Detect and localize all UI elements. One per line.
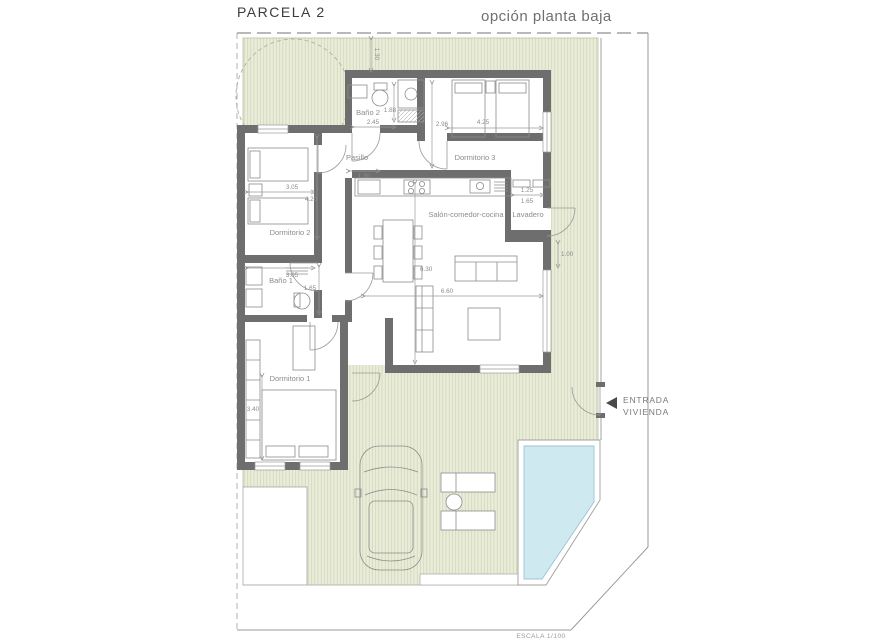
- dim-label: 4.25: [477, 119, 490, 126]
- dim-label: 4.20: [305, 196, 318, 203]
- pool: [518, 440, 600, 585]
- wall-segment: [385, 318, 393, 365]
- wall-segment: [345, 70, 551, 78]
- dim-label: 6.30: [420, 266, 433, 273]
- wall-segment: [380, 125, 417, 133]
- room-label-pasillo: Pasillo: [346, 153, 368, 162]
- page-title: PARCELA 2: [237, 4, 326, 20]
- wall-segment: [543, 352, 551, 373]
- wall-segment: [237, 462, 255, 470]
- wall-segment: [345, 178, 352, 273]
- floor-plan-page: PARCELA 2 opción planta baja: [0, 0, 878, 640]
- floor-plan-drawing: PARCELA 2 opción planta baja: [0, 0, 878, 640]
- dim-label: 6.60: [441, 288, 454, 295]
- entrance-annotation: ENTRADA VIVIENDA: [606, 395, 669, 417]
- entrance-arrow-icon: [606, 397, 617, 409]
- wall-segment: [345, 300, 352, 322]
- wall-segment: [245, 255, 314, 263]
- room-label-salon: Salón-comedor-cocina: [428, 210, 504, 219]
- wall-segment: [340, 365, 348, 470]
- dim-label: 1.25: [521, 187, 534, 194]
- room-label-lavadero: Lavadero: [512, 210, 543, 219]
- room-label-bano2: Baño 2: [356, 108, 380, 117]
- entrance-label-line2: VIVIENDA: [623, 407, 669, 417]
- dim-label: 3.40: [247, 406, 260, 413]
- wall-segment: [417, 133, 425, 141]
- wall-segment: [505, 230, 551, 242]
- lounger: [441, 511, 495, 530]
- lounger: [441, 473, 495, 492]
- wall-segment: [505, 178, 511, 230]
- room-label-bano1: Baño 1: [269, 276, 293, 285]
- entrance-label-line1: ENTRADA: [623, 395, 669, 405]
- dim-label: 3.05: [286, 184, 299, 191]
- dim-label: 2.45: [367, 119, 380, 126]
- dim-label: 1.30: [358, 173, 371, 180]
- dim-label: 1.65: [521, 198, 534, 205]
- gate-post: [596, 413, 605, 418]
- plot-boundary-chamfer: [571, 547, 648, 630]
- wall-segment: [288, 125, 345, 133]
- wall-segment: [345, 78, 352, 133]
- wall-segment: [314, 172, 322, 263]
- dim-label: 1.30: [373, 48, 380, 61]
- dim-label: 2.96: [436, 121, 449, 128]
- wall-segment: [543, 242, 551, 270]
- shower-step-hatch: [398, 110, 424, 122]
- wall-segment: [385, 365, 480, 373]
- page-subtitle: opción planta baja: [481, 8, 612, 25]
- scale-label: ESCALA 1/100: [516, 633, 565, 640]
- wall-segment: [340, 322, 348, 365]
- side-table: [446, 494, 462, 510]
- wall-segment: [543, 70, 551, 112]
- wall-segment: [314, 290, 322, 318]
- dim-label: 1.00: [561, 251, 574, 258]
- room-label-dorm3: Dormitorio 3: [455, 153, 496, 162]
- room-label-dorm2: Dormitorio 2: [270, 228, 311, 237]
- wall-segment: [237, 125, 245, 470]
- wall-segment: [245, 315, 307, 322]
- room-label-dorm1: Dormitorio 1: [270, 374, 311, 383]
- wall-segment: [314, 133, 322, 145]
- wall-segment: [285, 462, 300, 470]
- wall-segment: [245, 125, 258, 133]
- wall-segment: [330, 462, 348, 470]
- entry-walkway: [420, 574, 518, 585]
- gate-post: [596, 382, 605, 387]
- dim-label: 1.65: [304, 285, 317, 292]
- dim-label: 1.88: [384, 107, 397, 114]
- plot-notch: [243, 487, 307, 585]
